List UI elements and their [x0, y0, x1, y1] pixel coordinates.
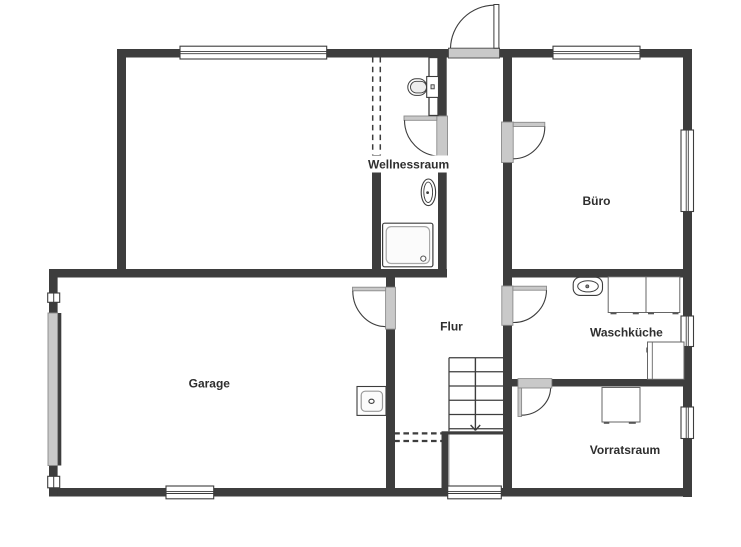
svg-text:Garage: Garage: [189, 376, 231, 390]
svg-text:Vorratsraum: Vorratsraum: [590, 443, 660, 457]
svg-text:Wellnessraum: Wellnessraum: [368, 158, 449, 172]
svg-text:Waschküche: Waschküche: [590, 326, 663, 340]
svg-text:Büro: Büro: [583, 194, 611, 208]
svg-text:Flur: Flur: [440, 319, 463, 333]
